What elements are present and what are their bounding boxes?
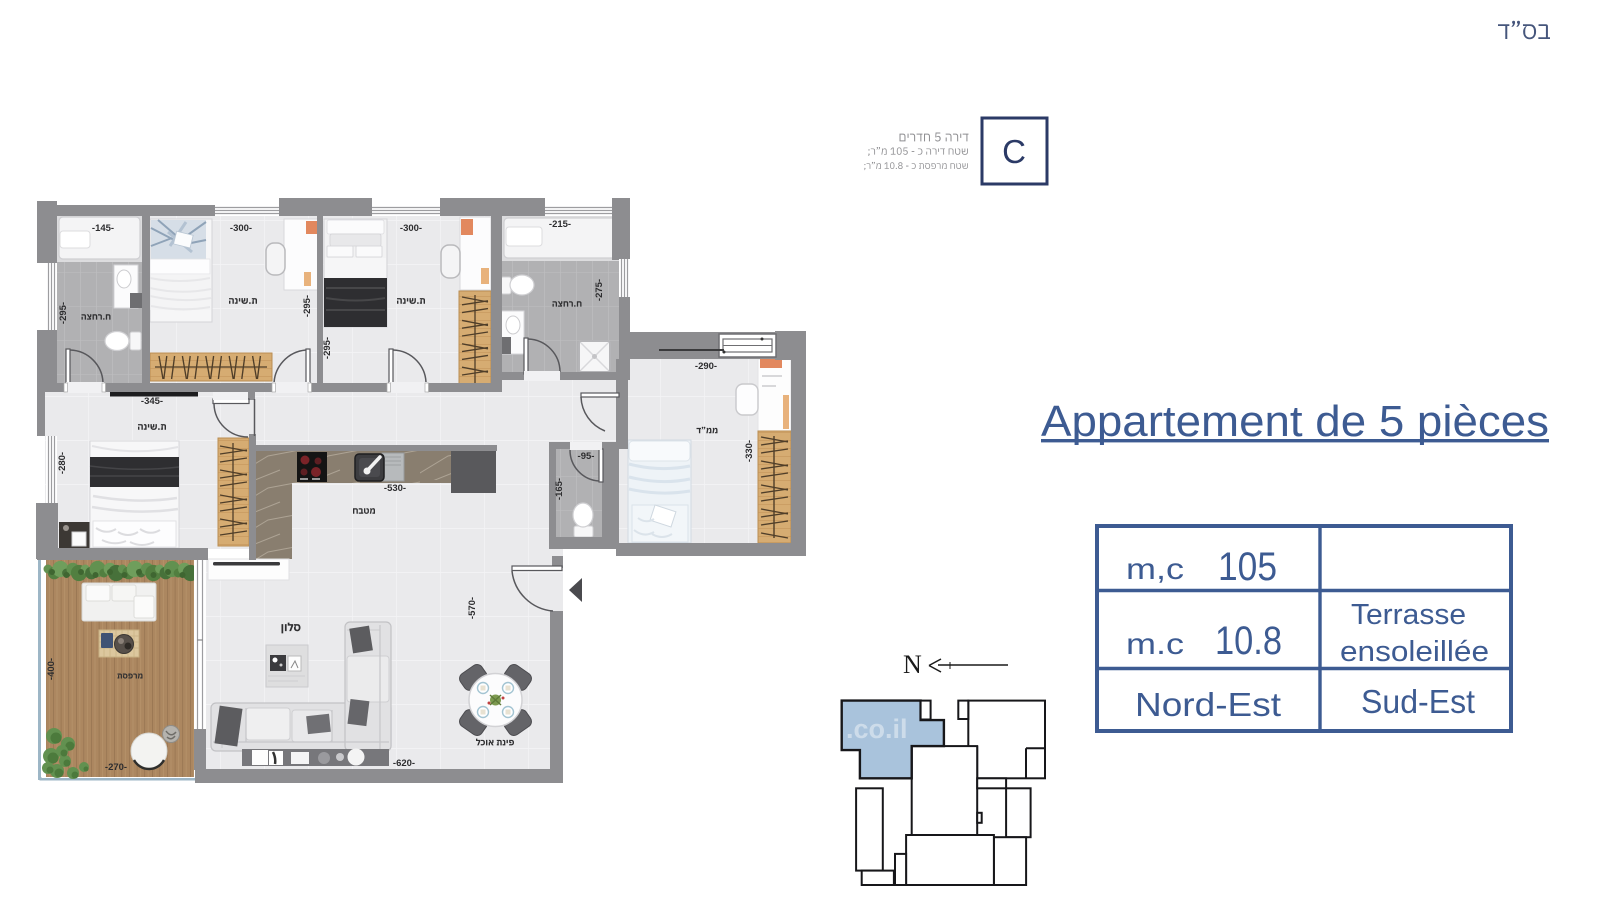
svg-text:Terrasse: Terrasse: [1351, 599, 1466, 631]
svg-text:-570-: -570-: [467, 597, 478, 619]
svg-text:-400-: -400-: [46, 658, 57, 680]
svg-text:-270-: -270-: [105, 762, 127, 773]
svg-text:-330-: -330-: [744, 440, 755, 462]
svg-text:105: 105: [1218, 545, 1277, 589]
svg-text:Nord-Est: Nord-Est: [1135, 686, 1281, 723]
svg-text:-300-: -300-: [400, 223, 422, 234]
svg-text:m,c: m,c: [1126, 553, 1184, 586]
svg-text:-300-: -300-: [230, 223, 252, 234]
svg-text:-620-: -620-: [393, 758, 415, 769]
svg-text:Appartement de 5 pièces: Appartement de 5 pièces: [1041, 398, 1549, 446]
svg-text:m.c: m.c: [1126, 628, 1184, 661]
svg-text:N: N: [903, 650, 922, 679]
svg-text:-295-: -295-: [58, 302, 69, 324]
svg-text:-165-: -165-: [554, 478, 565, 500]
svg-text:10.8: 10.8: [1215, 619, 1282, 663]
svg-text:.co.il: .co.il: [846, 714, 908, 744]
svg-text:-295-: -295-: [322, 337, 333, 359]
svg-text:-295-: -295-: [302, 295, 313, 317]
svg-text:ensoleillée: ensoleillée: [1340, 636, 1489, 668]
svg-text:C: C: [1002, 133, 1026, 170]
svg-text:-275-: -275-: [594, 279, 605, 301]
svg-text:-95-: -95-: [578, 451, 595, 462]
svg-text:-345-: -345-: [141, 396, 163, 407]
svg-text:-145-: -145-: [92, 223, 114, 234]
svg-text:-530-: -530-: [384, 483, 406, 494]
svg-text:-215-: -215-: [549, 219, 571, 230]
svg-text:Sud-Est: Sud-Est: [1361, 683, 1475, 720]
svg-text:-280-: -280-: [57, 452, 68, 474]
svg-text:-290-: -290-: [695, 361, 717, 372]
